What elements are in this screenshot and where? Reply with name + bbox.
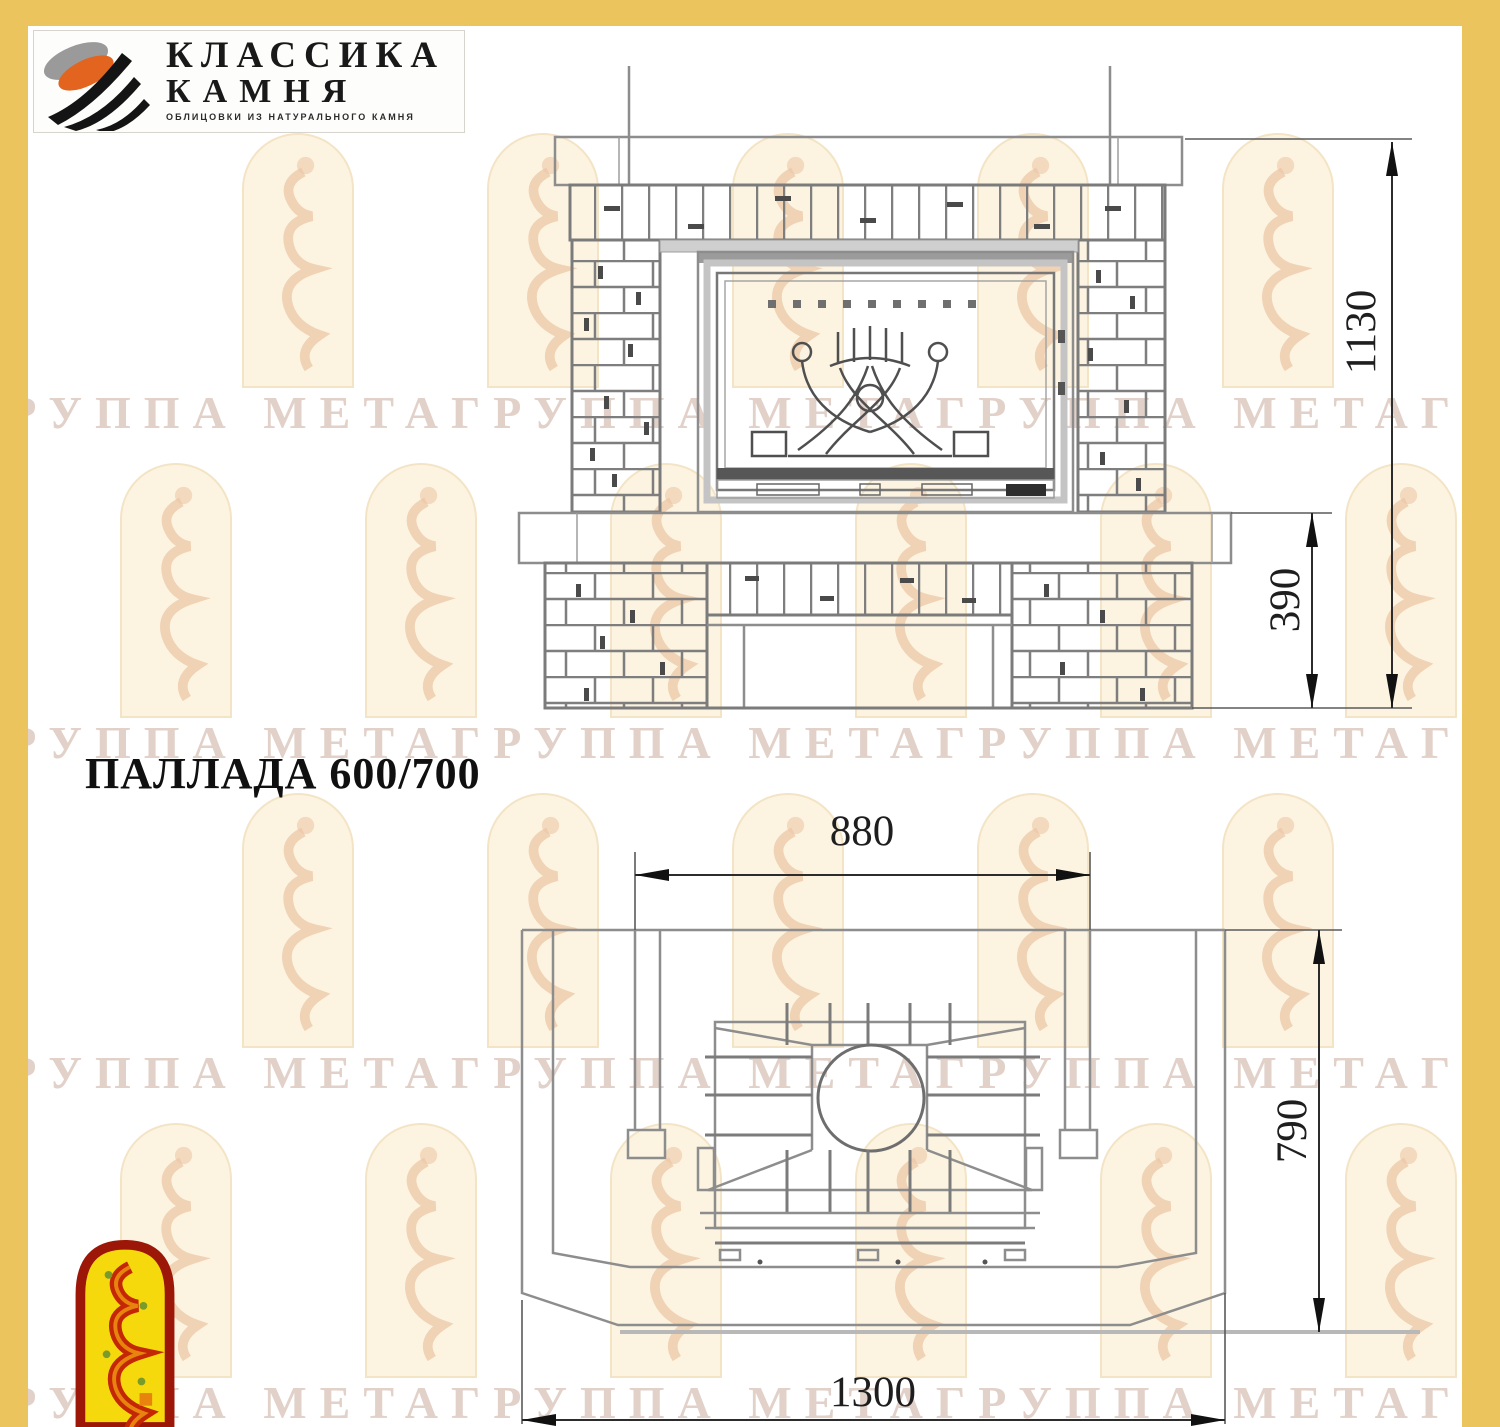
watermark-arch <box>120 463 232 718</box>
watermark-figure-icon <box>122 465 230 716</box>
firebox-insert-plan <box>698 1003 1042 1265</box>
corner-logo <box>72 1238 178 1427</box>
mantel-shelf <box>555 137 1182 185</box>
spec-sheet-page: ГРУППА МЕТАГРУППА МЕТАГРУППА МЕТАГРУППА … <box>0 0 1500 1427</box>
plan-view-drawing: 880 790 1300 <box>500 790 1460 1427</box>
chimney-lines <box>629 66 1110 185</box>
watermark-arch <box>242 793 354 1048</box>
watermark-figure-icon <box>367 1125 475 1376</box>
page-title: ПАЛЛАДА 600/700 <box>85 748 481 799</box>
watermark-figure-icon <box>244 795 352 1046</box>
dimension-1300: 1300 <box>522 1293 1225 1426</box>
yellow-border-right <box>1462 26 1500 1427</box>
watermark-figure-icon <box>367 465 475 716</box>
corner-logo-icon <box>72 1238 178 1427</box>
watermark-arch <box>242 133 354 388</box>
yellow-border-top <box>0 0 1500 26</box>
watermark-arch <box>365 463 477 718</box>
firebox-door <box>660 240 1078 512</box>
brick-column-left <box>572 240 660 512</box>
watermark-arch <box>365 1123 477 1378</box>
dim-label-1130: 1130 <box>1338 290 1385 374</box>
brand-tagline: ОБЛИЦОВКИ ИЗ НАТУРАЛЬНОГО КАМНЯ <box>166 112 445 122</box>
dim-label-790: 790 <box>1269 1099 1316 1164</box>
brand-logo-graphic <box>34 31 166 131</box>
brand-name-line2: КАМНЯ <box>166 74 445 110</box>
firebox-vent-dots <box>768 300 976 308</box>
brand-logo: КЛАССИКА КАМНЯ ОБЛИЦОВКИ ИЗ НАТУРАЛЬНОГО… <box>33 30 465 133</box>
base <box>545 563 1192 708</box>
dimension-390: 390 <box>1231 513 1332 708</box>
dimension-790: 790 <box>1225 930 1342 1332</box>
dim-label-1300: 1300 <box>830 1369 916 1416</box>
watermark-figure-icon <box>244 135 352 386</box>
dimension-880: 880 <box>635 808 1090 930</box>
hearth-shelf <box>519 513 1231 563</box>
brand-text: КЛАССИКА КАМНЯ ОБЛИЦОВКИ ИЗ НАТУРАЛЬНОГО… <box>166 31 445 132</box>
decorative-fireback <box>752 326 988 456</box>
dim-label-390: 390 <box>1262 568 1309 633</box>
yellow-border-left <box>0 26 28 1427</box>
dim-label-880: 880 <box>830 808 895 855</box>
soldier-frieze <box>570 185 1165 240</box>
brand-name-line1: КЛАССИКА <box>166 37 445 74</box>
front-elevation-drawing: 1130 390 <box>500 55 1460 715</box>
brick-column-right <box>1078 240 1165 512</box>
